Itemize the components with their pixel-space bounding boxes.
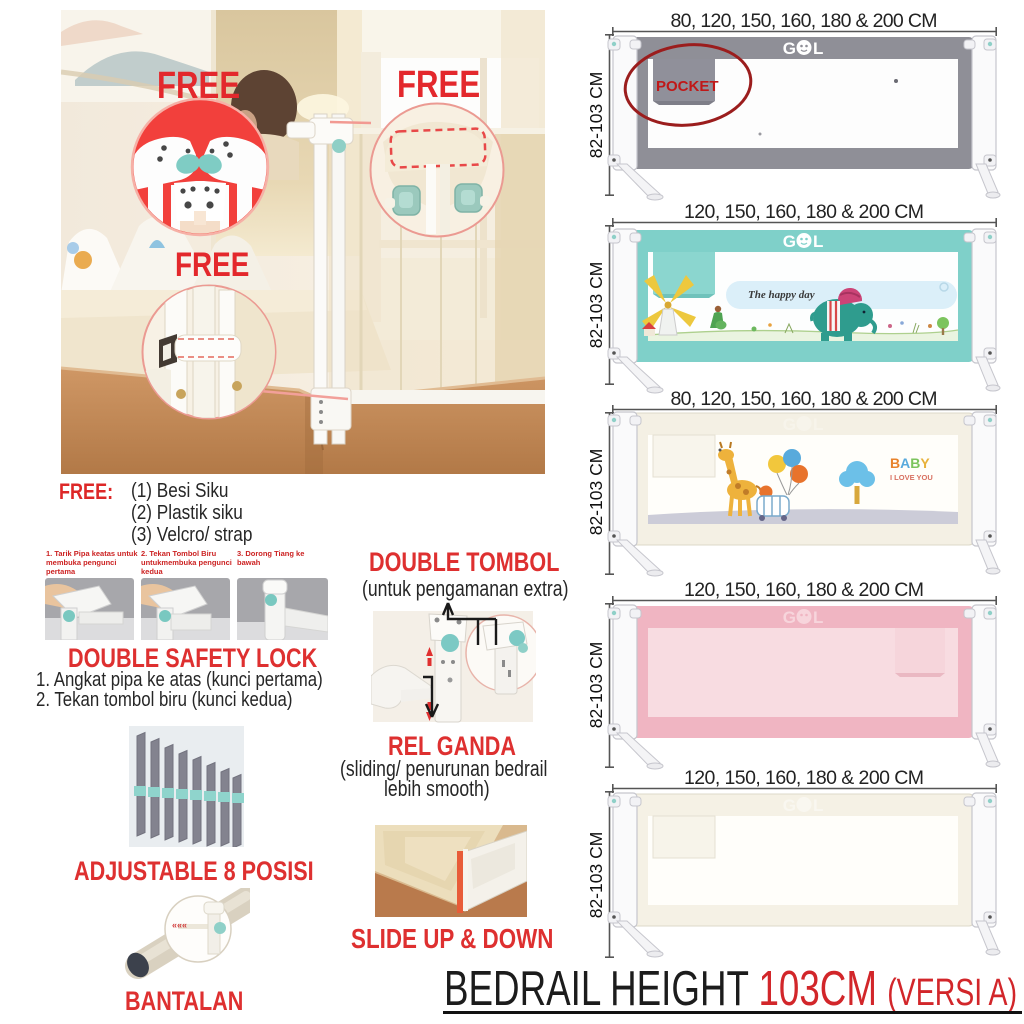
svg-text:80, 120, 150, 160, 180 & 200 C: 80, 120, 150, 160, 180 & 200 CM xyxy=(671,10,938,32)
svg-text:The happy day: The happy day xyxy=(748,289,815,301)
svg-text:82-103 CM: 82-103 CM xyxy=(586,72,606,159)
svg-text:G: G xyxy=(783,796,796,815)
svg-text:120, 150, 160, 180 & 200 CM: 120, 150, 160, 180 & 200 CM xyxy=(684,767,924,789)
svg-text:L: L xyxy=(813,796,823,815)
svg-text:G: G xyxy=(783,415,796,434)
svg-text:80, 120, 150, 160, 180 & 200 C: 80, 120, 150, 160, 180 & 200 CM xyxy=(671,388,938,410)
svg-text:«««: ««« xyxy=(172,920,187,930)
svg-text:82-103 CM: 82-103 CM xyxy=(586,262,606,349)
svg-text:L: L xyxy=(813,232,823,251)
svg-text:82-103 CM: 82-103 CM xyxy=(586,642,606,729)
svg-text:L: L xyxy=(813,39,823,58)
svg-text:G: G xyxy=(783,39,796,58)
svg-text:120, 150, 160, 180 & 200 CM: 120, 150, 160, 180 & 200 CM xyxy=(684,579,924,601)
svg-text:POCKET: POCKET xyxy=(656,78,719,95)
svg-text:BABY: BABY xyxy=(890,455,930,471)
svg-text:I LOVE YOU: I LOVE YOU xyxy=(890,473,933,482)
svg-text:G: G xyxy=(783,232,796,251)
svg-text:82-103 CM: 82-103 CM xyxy=(586,449,606,536)
svg-text:L: L xyxy=(813,415,823,434)
svg-text:G: G xyxy=(783,608,796,627)
svg-text:120, 150, 160, 180 & 200 CM: 120, 150, 160, 180 & 200 CM xyxy=(684,201,924,223)
svg-text:L: L xyxy=(813,608,823,627)
svg-text:82-103 CM: 82-103 CM xyxy=(586,832,606,919)
